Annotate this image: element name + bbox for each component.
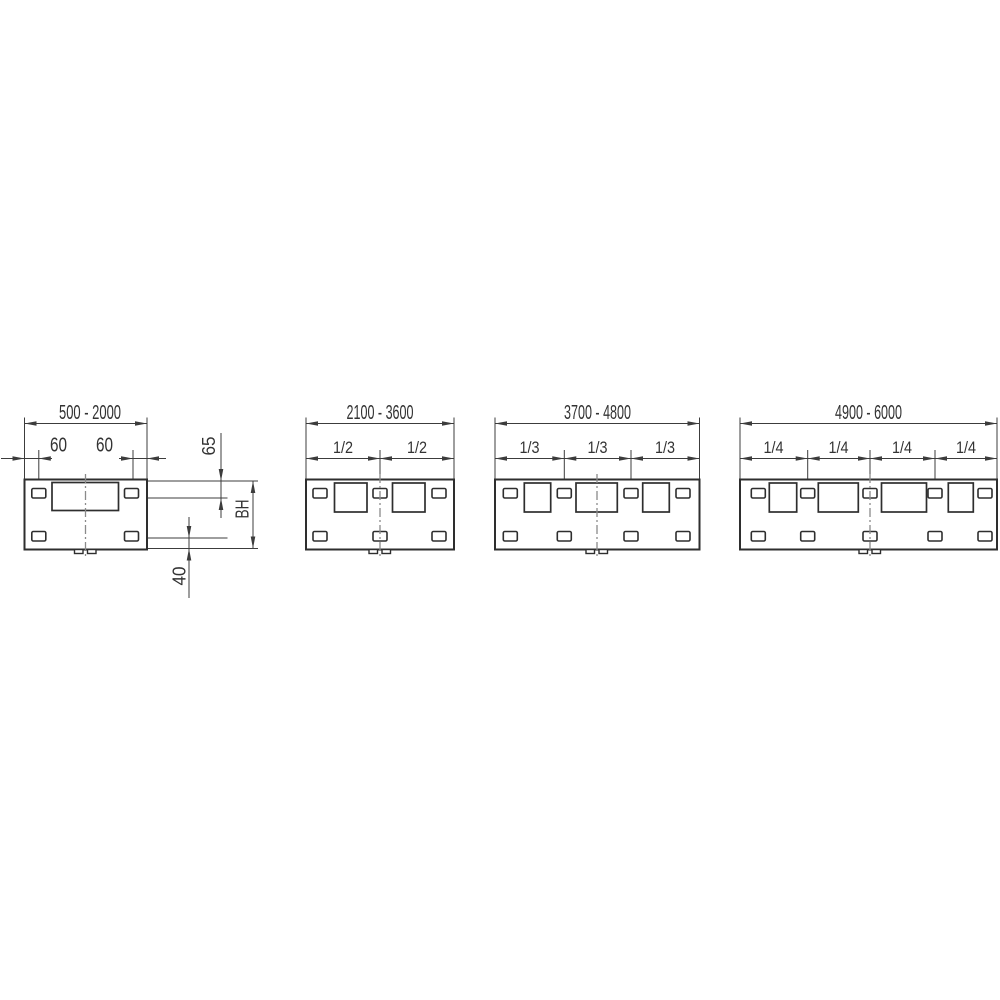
dim-fraction-label: 1/4 [829, 439, 849, 457]
dim-fraction-label: 1/2 [333, 439, 353, 457]
mounting-slot [313, 532, 327, 542]
mounting-slot [125, 532, 139, 542]
mounting-slot [801, 532, 815, 542]
dim-panel-height-label: BH [233, 500, 253, 519]
mounting-slot [928, 532, 942, 542]
dim-fraction-label: 1/3 [588, 439, 608, 457]
dim-top-slot-offset-label: 65 [199, 437, 219, 456]
cutout [335, 483, 368, 512]
bottom-tab [88, 550, 97, 554]
bottom-tab [859, 550, 868, 554]
dim-width-range-label: 2100 - 3600 [347, 402, 414, 424]
mounting-slot [32, 489, 46, 499]
mounting-slot [313, 489, 327, 499]
mounting-slot [432, 532, 446, 542]
dim-left-offset-label: 60 [50, 435, 67, 457]
mounting-slot [676, 489, 690, 499]
drawing-canvas: 500 - 2000 60 60 65 BH 40 2100 - 3600 1/… [0, 0, 1000, 1000]
mounting-slot [928, 489, 942, 499]
dim-width-range-label: 500 - 2000 [59, 402, 121, 424]
mounting-slot [432, 489, 446, 499]
bottom-tab [586, 550, 595, 554]
cutout [769, 483, 796, 512]
mounting-slot [801, 489, 815, 499]
technical-drawing-page: 500 - 2000 60 60 65 BH 40 2100 - 3600 1/… [0, 0, 1000, 1000]
dim-fraction-label: 1/3 [520, 439, 540, 457]
dim-width-range-label: 4900 - 6000 [835, 402, 902, 424]
bottom-tab [599, 550, 608, 554]
dim-width-range-label: 3700 - 4800 [564, 402, 631, 424]
cutout [818, 483, 858, 512]
mounting-slot [751, 489, 765, 499]
mounting-slot [125, 489, 139, 499]
bottom-tab [872, 550, 881, 554]
dim-fraction-label: 1/4 [764, 439, 784, 457]
cutout [524, 483, 550, 512]
dim-fraction-label: 1/2 [407, 439, 427, 457]
dim-fraction-label: 1/3 [655, 439, 675, 457]
dim-bottom-slot-offset-label: 40 [170, 567, 190, 586]
mounting-slot [32, 532, 46, 542]
mounting-slot [624, 532, 638, 542]
mounting-slot [624, 489, 638, 499]
dim-fraction-label: 1/4 [892, 439, 912, 457]
bottom-tab [382, 550, 391, 554]
cutout [882, 483, 927, 512]
mounting-slot [978, 532, 992, 542]
cutout [948, 483, 973, 512]
mounting-slot [751, 532, 765, 542]
mounting-slot [676, 532, 690, 542]
bottom-tab [75, 550, 84, 554]
bottom-tab [369, 550, 378, 554]
dim-fraction-label: 1/4 [956, 439, 976, 457]
mounting-slot [503, 532, 517, 542]
cutout [393, 483, 426, 512]
mounting-slot [978, 489, 992, 499]
mounting-slot [557, 489, 571, 499]
cutout [643, 483, 670, 512]
mounting-slot [557, 532, 571, 542]
dim-right-offset-label: 60 [96, 435, 113, 457]
mounting-slot [503, 489, 517, 499]
